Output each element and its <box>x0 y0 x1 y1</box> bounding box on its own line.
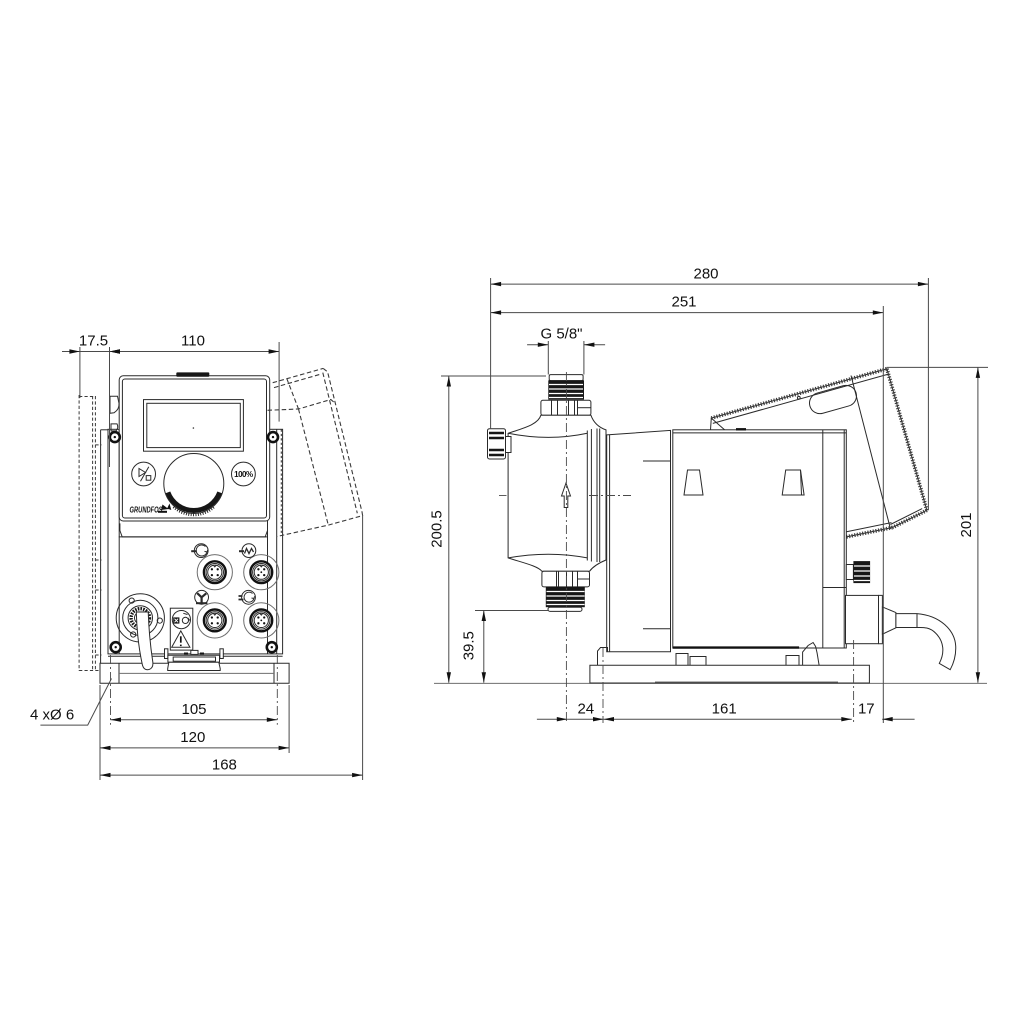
svg-text:201: 201 <box>958 512 975 537</box>
svg-text:24: 24 <box>577 700 594 717</box>
svg-text:110: 110 <box>181 333 205 350</box>
svg-text:105: 105 <box>181 701 206 718</box>
svg-text:120: 120 <box>180 729 205 746</box>
svg-text:100%: 100% <box>234 470 253 479</box>
svg-text:161: 161 <box>712 700 737 717</box>
svg-text:4 xØ 6: 4 xØ 6 <box>30 707 74 724</box>
svg-text:200.5: 200.5 <box>429 510 446 548</box>
svg-text:GRUNDFOS: GRUNDFOS <box>130 505 163 514</box>
svg-text:280: 280 <box>693 265 718 282</box>
svg-text:168: 168 <box>212 756 237 773</box>
svg-text:39.5: 39.5 <box>461 631 478 660</box>
svg-text:17: 17 <box>858 700 875 717</box>
svg-text:17.5: 17.5 <box>79 333 108 350</box>
svg-text:251: 251 <box>671 294 696 311</box>
svg-text:G 5/8": G 5/8" <box>540 326 582 343</box>
